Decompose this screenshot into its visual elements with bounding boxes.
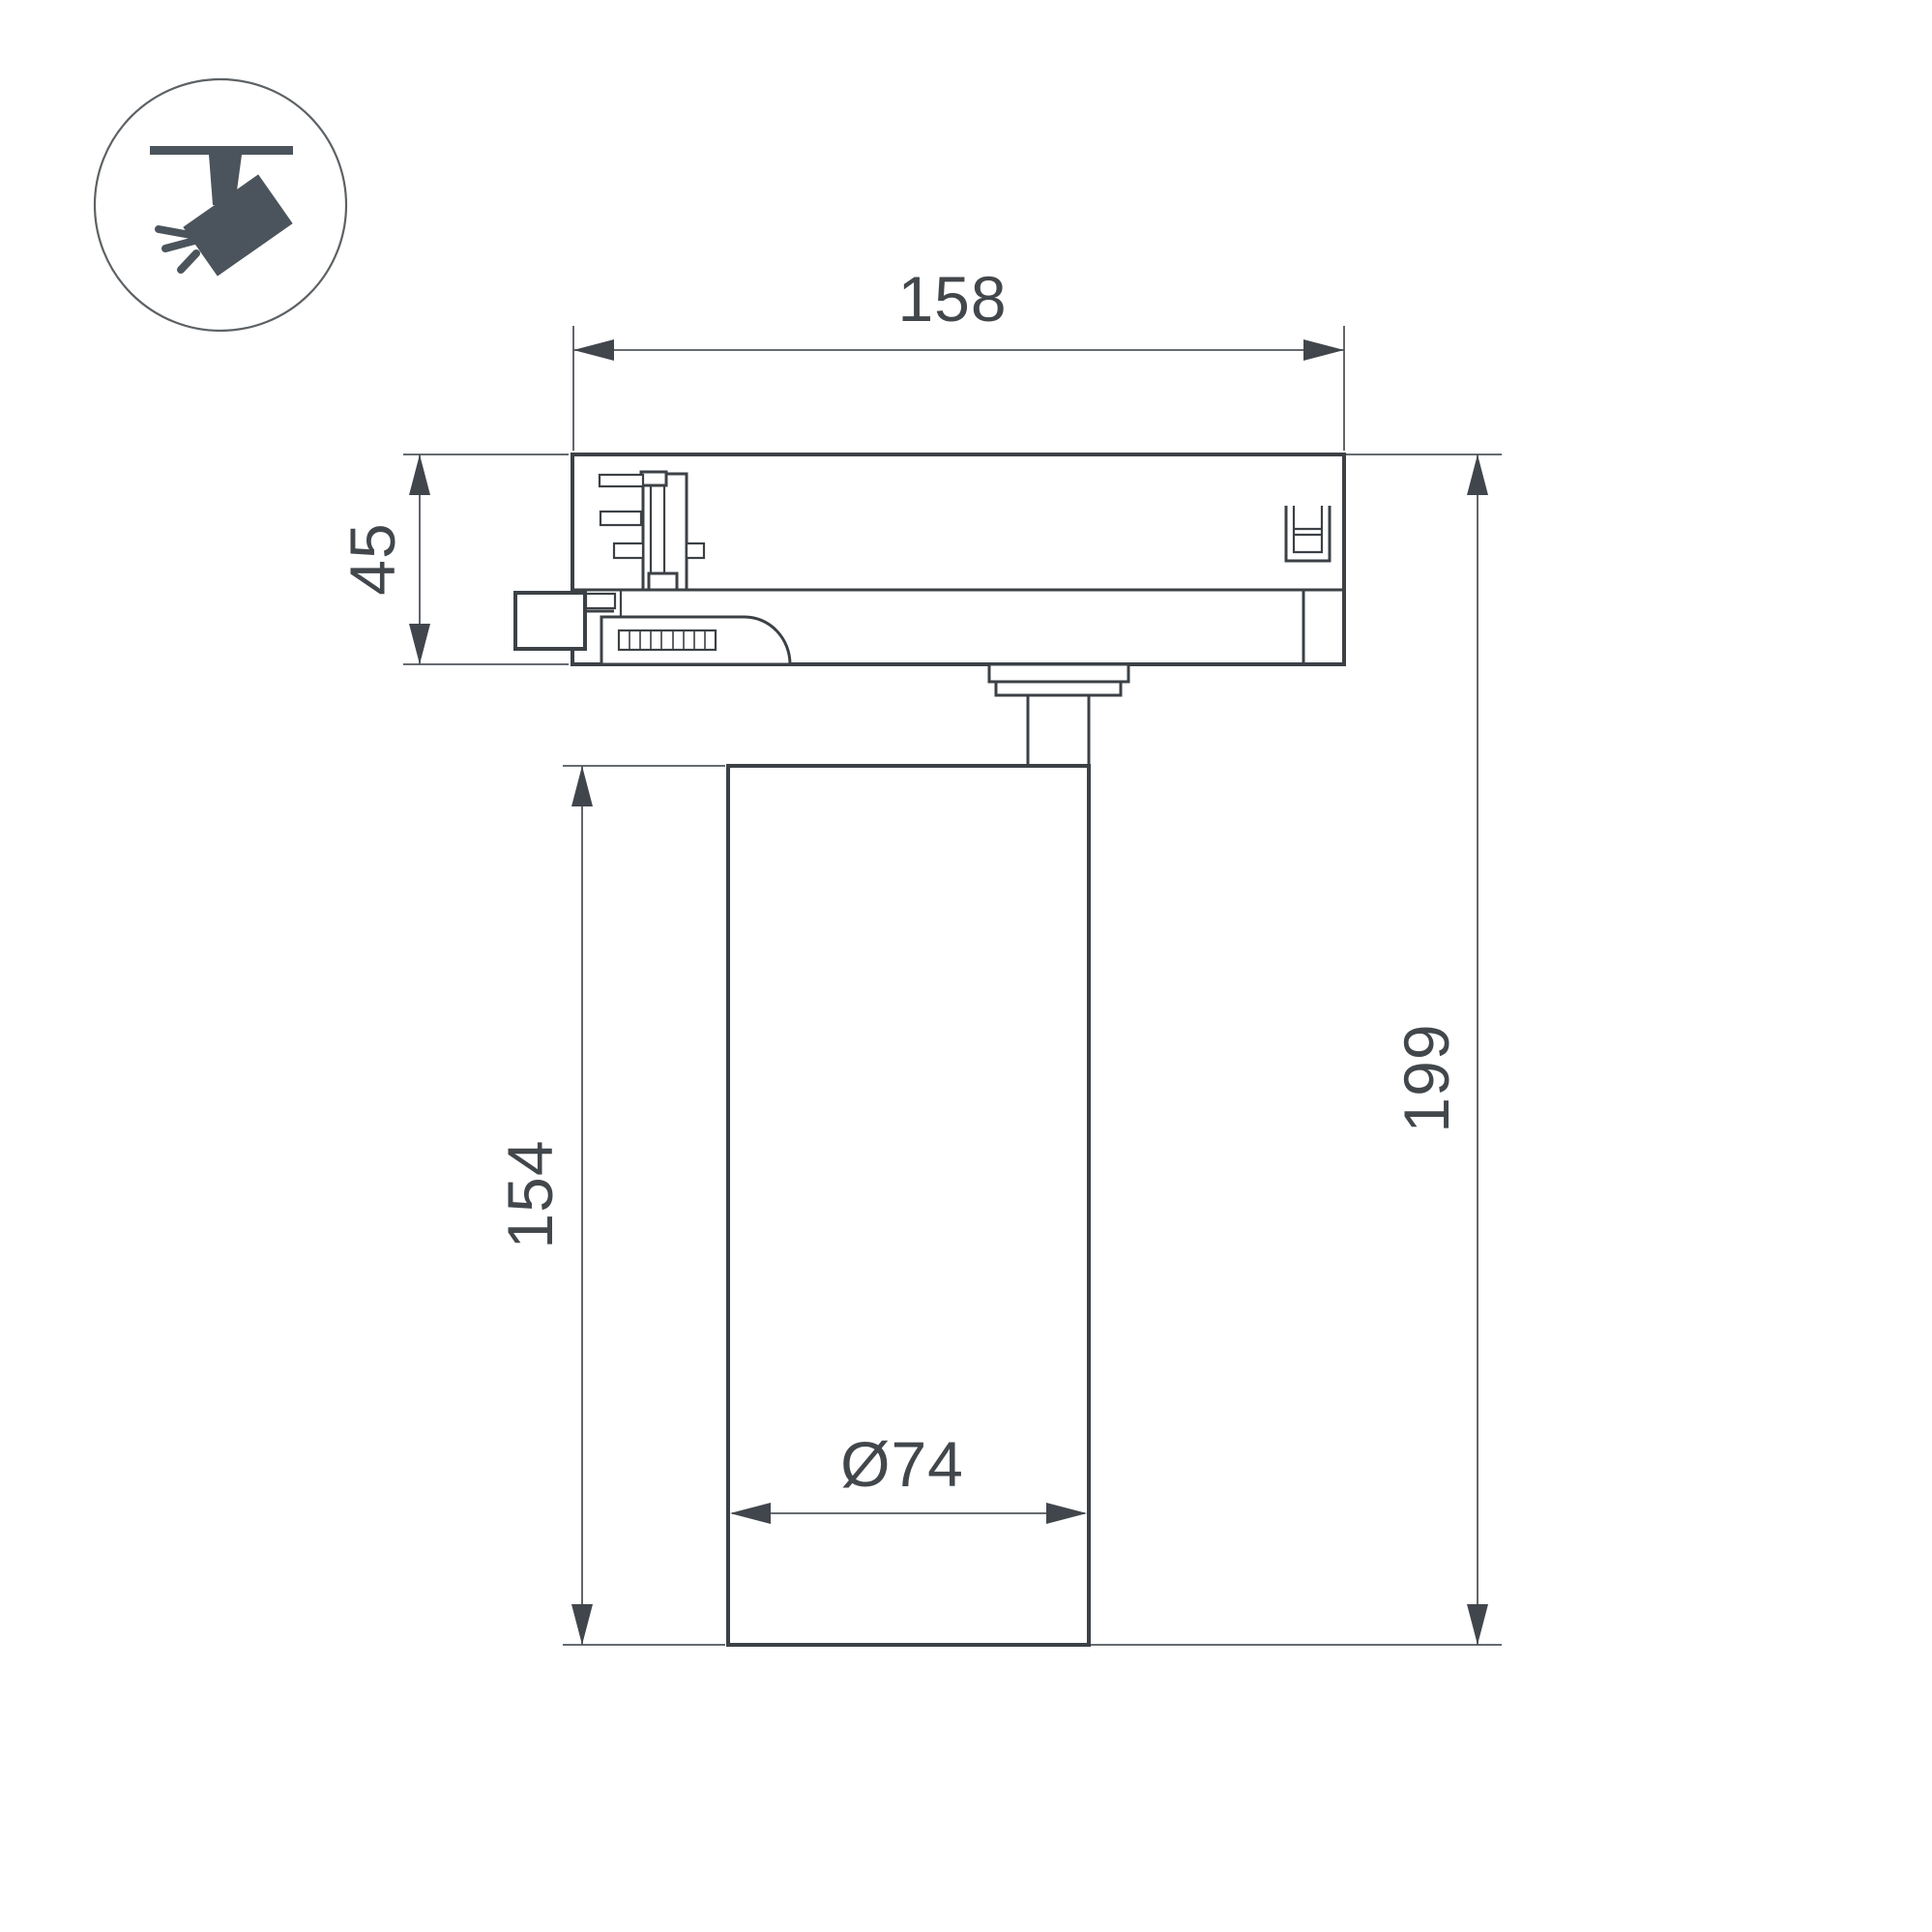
dimension-drawing: 158 45 154 199 Ø74	[0, 0, 1932, 1932]
dip-switch-block	[619, 630, 716, 650]
track-light-icon	[95, 79, 346, 331]
contact-tab	[600, 512, 641, 525]
arrowhead-down	[1467, 1604, 1488, 1645]
joint-plate-lower	[996, 682, 1121, 695]
dimension-label: 154	[494, 1139, 566, 1248]
icon-light-ray	[165, 241, 194, 249]
arrowhead-left	[573, 339, 614, 361]
pivot-joint	[989, 664, 1128, 766]
icon-light-ray	[181, 253, 196, 270]
pin-foot	[649, 573, 677, 590]
dimension-body-height: 154	[494, 766, 725, 1645]
arrowhead-down	[409, 624, 430, 664]
arrowhead-up	[409, 454, 430, 495]
arrowhead-down	[571, 1604, 593, 1645]
latch-plate	[586, 594, 615, 608]
contact-tab	[614, 543, 643, 558]
latch-block	[515, 593, 585, 649]
dimension-label: Ø74	[840, 1428, 964, 1500]
contact-tab	[600, 475, 643, 486]
dimension-label: 199	[1390, 1023, 1462, 1132]
track-adapter	[515, 454, 1344, 664]
dimension-adapter-width: 158	[573, 263, 1344, 451]
contact-tab	[687, 543, 704, 558]
joint-plate-upper	[989, 664, 1128, 682]
arrowhead-right	[1303, 339, 1344, 361]
dimension-label: 158	[897, 263, 1007, 335]
dimension-label: 45	[337, 522, 408, 595]
icon-lamp-head	[183, 174, 292, 276]
arrowhead-up	[571, 766, 593, 806]
pin-cap	[641, 472, 666, 485]
arrowhead-up	[1467, 454, 1488, 495]
icon-track-bar	[150, 146, 293, 155]
